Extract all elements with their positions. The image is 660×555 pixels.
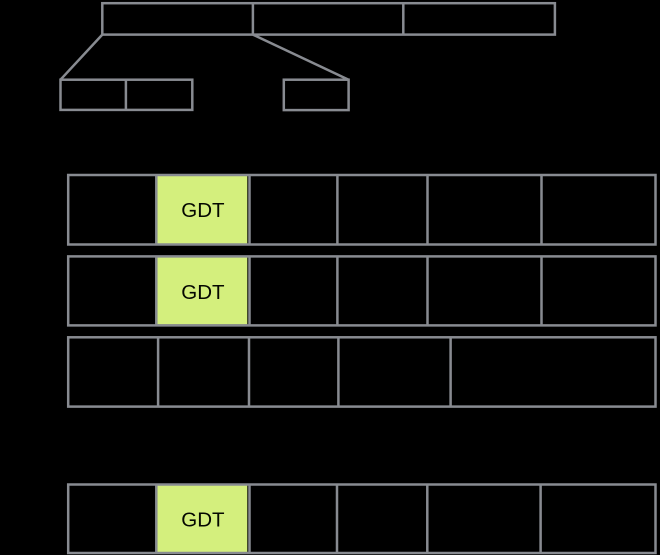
svg-text:GDT: GDT [181, 509, 225, 532]
svg-text:GDT: GDT [181, 199, 225, 222]
svg-text:GDT: GDT [181, 281, 225, 304]
